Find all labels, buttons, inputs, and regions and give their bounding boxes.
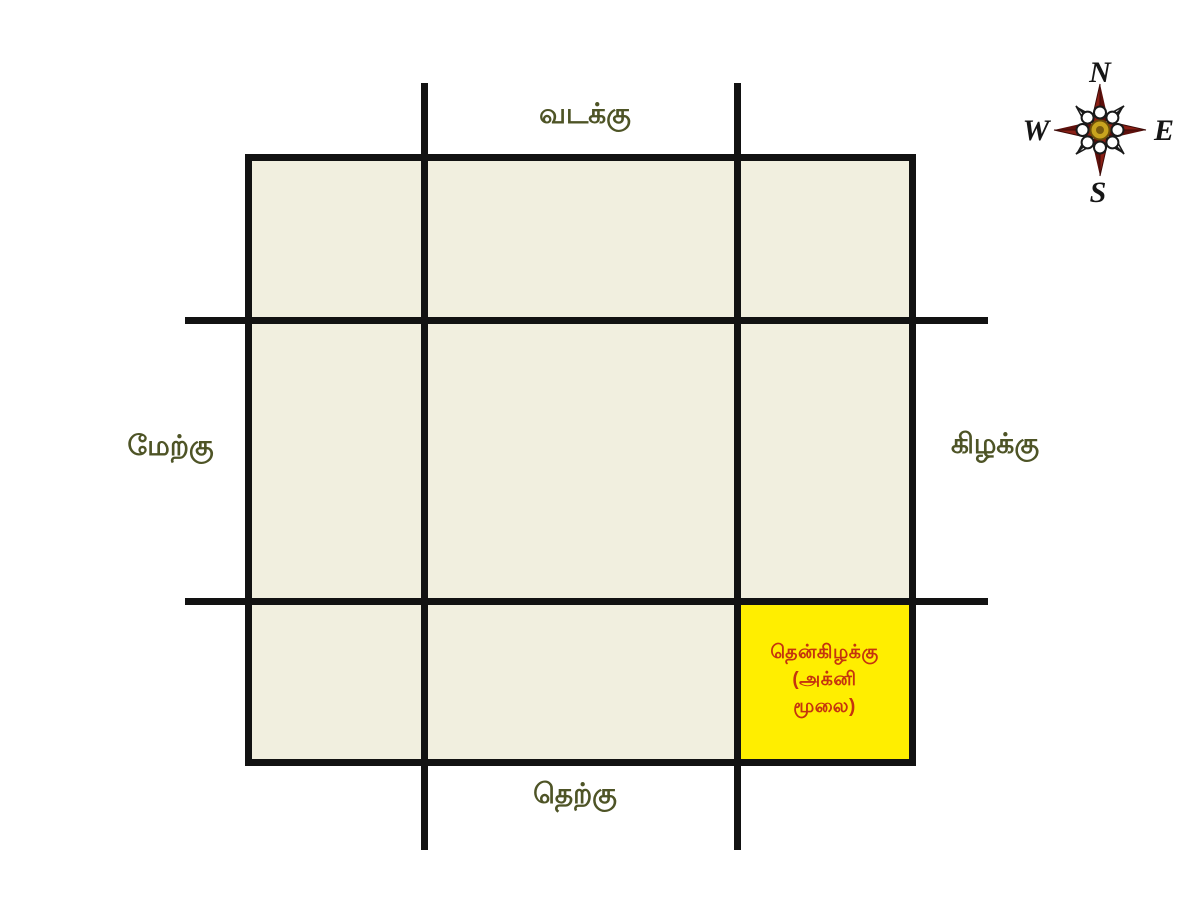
grid-line-horizontal-bottom	[185, 598, 988, 605]
southeast-highlight-cell: தென்கிழக்கு (அக்னி மூலை)	[740, 602, 909, 759]
southeast-cell-line2: (அக்னி	[792, 667, 856, 694]
label-north: வடக்கு	[500, 98, 670, 134]
compass-letter-n: N	[1088, 56, 1112, 89]
grid-line-vertical-right	[734, 83, 741, 850]
grid-line-vertical-left	[421, 83, 428, 850]
label-west: மேற்கு	[108, 430, 233, 466]
grid-line-horizontal-top	[185, 317, 988, 324]
southeast-cell-line1: தென்கிழக்கு	[770, 640, 878, 667]
label-south: தெற்கு	[495, 778, 655, 814]
label-east: கிழக்கு	[930, 428, 1060, 464]
compass-letter-s: S	[1090, 176, 1107, 209]
southeast-cell-line3: மூலை)	[793, 694, 856, 721]
compass-rose-icon: N E S W	[1008, 40, 1192, 216]
vastu-direction-diagram: தென்கிழக்கு (அக்னி மூலை) வடக்கு தெற்கு ம…	[0, 0, 1200, 916]
compass-center-hub	[1091, 121, 1110, 140]
compass-letter-e: E	[1153, 114, 1174, 147]
compass-letter-w: W	[1023, 114, 1052, 147]
